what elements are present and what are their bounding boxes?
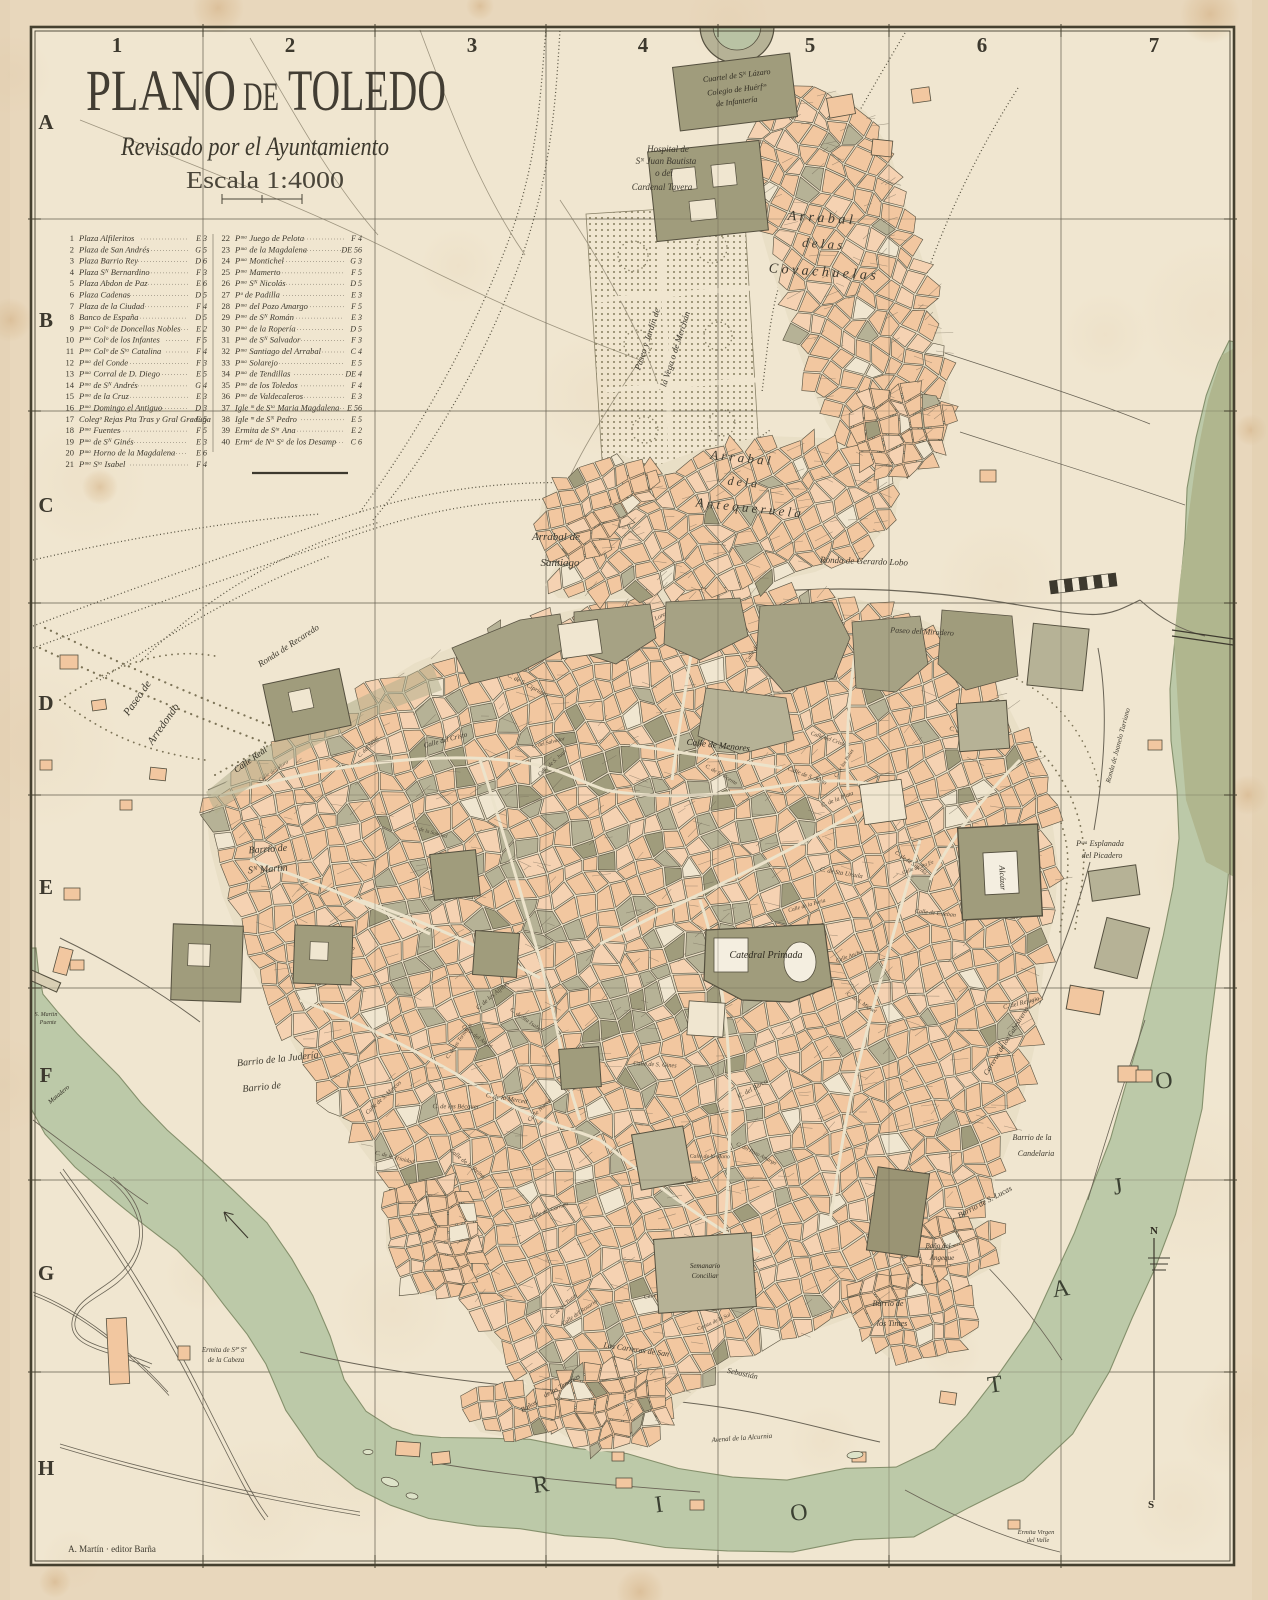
svg-text:E 2: E 2 xyxy=(195,324,207,333)
svg-text:Pᵚᵃ de Sᴺ Román: Pᵚᵃ de Sᴺ Román xyxy=(234,312,294,322)
svg-text:Pᵚᵃ de Sᴺ Andrés: Pᵚᵃ de Sᴺ Andrés xyxy=(78,380,138,390)
svg-text:F 5: F 5 xyxy=(195,336,207,345)
svg-text:E 6: E 6 xyxy=(195,449,207,458)
svg-text:Ermita de Sᵗᵃ Ana: Ermita de Sᵗᵃ Ana xyxy=(234,425,296,435)
svg-text:2: 2 xyxy=(70,244,74,254)
svg-text:6: 6 xyxy=(977,33,988,57)
svg-text:Semanario: Semanario xyxy=(690,1262,721,1270)
svg-text:10: 10 xyxy=(66,335,75,345)
svg-text:Arrabal de: Arrabal de xyxy=(531,531,580,543)
svg-text:D 5: D 5 xyxy=(194,291,207,300)
svg-text:38: 38 xyxy=(222,414,231,424)
svg-text:Pᵚᵃ de la Cruz: Pᵚᵃ de la Cruz xyxy=(78,391,129,401)
svg-text:G 5: G 5 xyxy=(195,245,207,254)
svg-text:Banco de España: Banco de España xyxy=(79,312,139,322)
svg-text:D: D xyxy=(38,691,53,715)
svg-text:Pᵚᵃ Corral de D. Diego: Pᵚᵃ Corral de D. Diego xyxy=(78,369,160,379)
svg-text:Pᵚᵃ de los Toledos: Pᵚᵃ de los Toledos xyxy=(234,380,298,390)
svg-text:E 5: E 5 xyxy=(350,415,362,424)
svg-text:G 3: G 3 xyxy=(350,257,362,266)
svg-text:D 5: D 5 xyxy=(349,324,362,333)
svg-text:Catedral Primada: Catedral Primada xyxy=(729,950,802,961)
svg-text:DE: DE xyxy=(243,74,279,119)
svg-text:E 2: E 2 xyxy=(350,426,362,435)
svg-text:1: 1 xyxy=(112,33,123,57)
svg-text:28: 28 xyxy=(222,301,231,311)
svg-text:Puente: Puente xyxy=(39,1020,57,1026)
svg-text:23: 23 xyxy=(222,244,231,254)
svg-text:E: E xyxy=(39,875,53,899)
svg-text:PLANO: PLANO xyxy=(86,58,236,123)
svg-text:Pᵒ de Padilla: Pᵒ de Padilla xyxy=(234,290,280,300)
svg-text:TOLEDO: TOLEDO xyxy=(288,58,446,123)
svg-text:Plaza Alfileritos: Plaza Alfileritos xyxy=(78,233,135,243)
svg-text:27: 27 xyxy=(222,290,231,300)
svg-text:Sᴺ Juan Bautista: Sᴺ Juan Bautista xyxy=(636,156,697,166)
svg-text:Pᵚᵃ del Conde: Pᵚᵃ del Conde xyxy=(78,357,128,367)
svg-text:G 4: G 4 xyxy=(195,381,207,390)
svg-text:D 6: D 6 xyxy=(194,257,207,266)
svg-text:25: 25 xyxy=(222,267,231,277)
svg-text:Pᵚᵃ de Sᴺ Ginés: Pᵚᵃ de Sᴺ Ginés xyxy=(78,436,134,446)
svg-text:d e l a s: d e l a s xyxy=(802,235,843,253)
svg-text:Hospital de: Hospital de xyxy=(646,144,689,154)
svg-text:DE 4: DE 4 xyxy=(344,370,362,379)
svg-text:C: C xyxy=(38,493,53,517)
svg-text:3: 3 xyxy=(467,33,478,57)
svg-text:C 4: C 4 xyxy=(351,347,362,356)
svg-text:E 3: E 3 xyxy=(350,313,362,322)
svg-text:2: 2 xyxy=(285,33,296,57)
svg-text:E 3: E 3 xyxy=(350,392,362,401)
svg-text:D 5: D 5 xyxy=(349,279,362,288)
svg-text:Igle ᵐ de Sᵗᵃ Maria Magdalena: Igle ᵐ de Sᵗᵃ Maria Magdalena xyxy=(234,403,339,413)
svg-text:N: N xyxy=(1150,1225,1158,1237)
svg-text:24: 24 xyxy=(222,256,231,266)
svg-text:F 5: F 5 xyxy=(350,268,362,277)
svg-text:del Picadero: del Picadero xyxy=(1082,851,1123,860)
svg-text:Baño del: Baño del xyxy=(925,1242,950,1250)
svg-text:Pᵚᵃ Esplanada: Pᵚᵃ Esplanada xyxy=(1075,839,1124,848)
svg-text:Pᵚᵃ de la Magdalena: Pᵚᵃ de la Magdalena xyxy=(234,244,307,254)
svg-text:Angeque: Angeque xyxy=(929,1254,955,1262)
svg-text:del Valle: del Valle xyxy=(1027,1537,1050,1544)
svg-text:Pᵚᵃ Fuentes: Pᵚᵃ Fuentes xyxy=(78,425,121,435)
svg-text:F 4: F 4 xyxy=(350,234,362,243)
svg-text:20: 20 xyxy=(66,448,75,458)
svg-text:Plaza Cadenas: Plaza Cadenas xyxy=(78,290,131,300)
svg-text:F 4: F 4 xyxy=(195,460,207,469)
svg-text:Pᵚᵃ de la Ropería: Pᵚᵃ de la Ropería xyxy=(234,323,296,333)
svg-text:18: 18 xyxy=(66,425,75,435)
svg-text:G: G xyxy=(38,1261,54,1285)
svg-text:A: A xyxy=(38,110,54,134)
svg-text:Ermita de S¹ª Sª: Ermita de S¹ª Sª xyxy=(201,1346,247,1354)
svg-text:E 56: E 56 xyxy=(346,404,362,413)
svg-text:Pᵚᵃ de Tendillas: Pᵚᵃ de Tendillas xyxy=(234,369,291,379)
svg-text:Pᵚᵃ Colᵒ de Sᵗᵃ Catalina: Pᵚᵃ Colᵒ de Sᵗᵃ Catalina xyxy=(78,346,161,356)
svg-text:los Tintes: los Tintes xyxy=(877,1319,907,1328)
svg-text:37: 37 xyxy=(222,403,231,413)
svg-text:21: 21 xyxy=(66,459,75,469)
svg-text:22: 22 xyxy=(222,233,231,243)
svg-text:39: 39 xyxy=(222,425,231,435)
svg-text:F 3: F 3 xyxy=(195,358,207,367)
svg-text:S. Martin: S. Martin xyxy=(35,1012,58,1018)
svg-text:Pᵚᵃ Sᵗᵃ Isabel: Pᵚᵃ Sᵗᵃ Isabel xyxy=(78,459,126,469)
svg-text:12: 12 xyxy=(66,357,75,367)
svg-text:E 6: E 6 xyxy=(195,279,207,288)
svg-text:4: 4 xyxy=(638,33,649,57)
svg-text:B: B xyxy=(39,308,53,332)
svg-text:7: 7 xyxy=(1149,33,1160,57)
svg-text:Candelaria: Candelaria xyxy=(1018,1149,1054,1158)
svg-text:11: 11 xyxy=(66,346,74,356)
svg-text:15: 15 xyxy=(66,391,75,401)
svg-text:36: 36 xyxy=(222,391,231,401)
svg-text:Plaza Abdon de Paz: Plaza Abdon de Paz xyxy=(78,278,148,288)
svg-text:Plaza de la Ciudad: Plaza de la Ciudad xyxy=(78,301,145,311)
svg-text:O: O xyxy=(789,1499,810,1527)
svg-text:Pᵚᵃ Colᵒ de los Infantes: Pᵚᵃ Colᵒ de los Infantes xyxy=(78,335,160,345)
svg-text:E 5: E 5 xyxy=(195,370,207,379)
svg-text:Ermᵃ de Nᵃ Sᵃ de los Desamp: Ermᵃ de Nᵃ Sᵃ de los Desamp xyxy=(234,436,336,446)
svg-text:E 3: E 3 xyxy=(195,392,207,401)
svg-text:34: 34 xyxy=(222,369,231,379)
svg-text:17: 17 xyxy=(66,414,75,424)
svg-text:Pᵚᵃ Solarejo: Pᵚᵃ Solarejo xyxy=(234,357,278,367)
svg-text:16: 16 xyxy=(66,403,75,413)
svg-text:3: 3 xyxy=(70,256,74,266)
svg-text:Pᵚᵃ Domingo el Antiguo: Pᵚᵃ Domingo el Antiguo xyxy=(78,403,162,413)
svg-text:D 3: D 3 xyxy=(194,404,207,413)
svg-text:Cardenal Tavera: Cardenal Tavera xyxy=(632,182,693,192)
svg-text:31: 31 xyxy=(222,335,231,345)
svg-text:1: 1 xyxy=(70,233,74,243)
svg-text:E 3: E 3 xyxy=(195,437,207,446)
svg-text:Plaza Sᴺ Bernardino: Plaza Sᴺ Bernardino xyxy=(78,267,150,277)
svg-text:O: O xyxy=(1154,1067,1175,1095)
svg-text:33: 33 xyxy=(222,357,231,367)
svg-text:Santiago: Santiago xyxy=(540,557,580,569)
svg-text:5: 5 xyxy=(805,33,816,57)
svg-text:Calle de la Mano: Calle de la Mano xyxy=(690,1154,730,1161)
svg-text:F 3: F 3 xyxy=(195,268,207,277)
svg-text:Pᵚᵃ de Sᴺ Salvador: Pᵚᵃ de Sᴺ Salvador xyxy=(234,335,301,345)
svg-text:14: 14 xyxy=(66,380,75,390)
svg-text:C 5: C 5 xyxy=(196,415,207,424)
svg-text:29: 29 xyxy=(222,312,231,322)
svg-text:Pᵚᵃ del Pozo Amargo: Pᵚᵃ del Pozo Amargo xyxy=(234,301,308,311)
svg-text:H: H xyxy=(38,1456,54,1480)
svg-text:Pᵚᵃ Colᵒ de Doncellas Nobles: Pᵚᵃ Colᵒ de Doncellas Nobles xyxy=(78,323,181,333)
svg-text:F 4: F 4 xyxy=(350,381,362,390)
svg-text:F 4: F 4 xyxy=(195,347,207,356)
svg-text:Pᵚᵃ de Valdecaleros: Pᵚᵃ de Valdecaleros xyxy=(234,391,304,401)
svg-text:S: S xyxy=(1148,1499,1154,1511)
svg-text:F 3: F 3 xyxy=(350,336,362,345)
svg-text:30: 30 xyxy=(222,323,231,333)
svg-text:Pᵚᵃ Mamerto: Pᵚᵃ Mamerto xyxy=(234,267,281,277)
svg-text:8: 8 xyxy=(70,312,74,322)
svg-text:26: 26 xyxy=(222,278,231,288)
svg-text:40: 40 xyxy=(222,436,231,446)
svg-text:Ermita Virgen: Ermita Virgen xyxy=(1017,1529,1055,1536)
svg-text:F 4: F 4 xyxy=(195,302,207,311)
svg-text:C. de los Bécquer: C. de los Bécquer xyxy=(432,1103,479,1110)
svg-text:E 5: E 5 xyxy=(350,358,362,367)
svg-text:Colegᵒ Rejas Pta Tras y Gral G: Colegᵒ Rejas Pta Tras y Gral Graduga xyxy=(79,414,211,424)
svg-text:E 3: E 3 xyxy=(350,291,362,300)
svg-text:A. Martín · editor Barña: A. Martín · editor Barña xyxy=(68,1544,156,1554)
svg-text:E 3: E 3 xyxy=(195,234,207,243)
svg-text:Plaza Barrio Rey: Plaza Barrio Rey xyxy=(78,256,138,266)
svg-text:Pᵚᵃ Horno de la Magdalena: Pᵚᵃ Horno de la Magdalena xyxy=(78,448,175,458)
svg-text:Barrio de la: Barrio de la xyxy=(1012,1133,1051,1142)
svg-text:F 5: F 5 xyxy=(350,302,362,311)
svg-text:35: 35 xyxy=(222,380,231,390)
svg-text:D 5: D 5 xyxy=(194,313,207,322)
svg-text:32: 32 xyxy=(222,346,231,356)
svg-text:13: 13 xyxy=(66,369,75,379)
svg-text:Pᵚᵃ Montichel: Pᵚᵃ Montichel xyxy=(234,256,284,266)
svg-text:F 5: F 5 xyxy=(195,426,207,435)
svg-text:9: 9 xyxy=(70,323,74,333)
svg-text:Conciliar: Conciliar xyxy=(692,1272,719,1280)
svg-text:Plaza de San Andrés: Plaza de San Andrés xyxy=(78,244,150,254)
svg-text:Escala 1:4000: Escala 1:4000 xyxy=(186,168,344,194)
svg-text:Pᵚᵃ Juego de Pelota: Pᵚᵃ Juego de Pelota xyxy=(234,233,304,243)
svg-text:Pᵚᵃ Sᴺ Nicolás: Pᵚᵃ Sᴺ Nicolás xyxy=(234,278,286,288)
svg-text:Alcázar: Alcázar xyxy=(997,864,1007,891)
svg-text:o del: o del xyxy=(655,168,673,178)
svg-text:6: 6 xyxy=(70,290,74,300)
svg-text:19: 19 xyxy=(66,436,75,446)
svg-text:Barrio de: Barrio de xyxy=(873,1299,904,1308)
svg-text:Revisado por el Ayuntamiento: Revisado por el Ayuntamiento xyxy=(120,132,389,161)
svg-text:DE 56: DE 56 xyxy=(340,245,362,254)
svg-text:Pᵚᵃ Santiago del Arrabal: Pᵚᵃ Santiago del Arrabal xyxy=(234,346,322,356)
svg-text:de la Cabeza: de la Cabeza xyxy=(208,1356,245,1364)
svg-text:Igle ᵐ de Sᴺ Pedro: Igle ᵐ de Sᴺ Pedro xyxy=(234,414,297,424)
svg-text:7: 7 xyxy=(70,301,74,311)
svg-text:F: F xyxy=(40,1063,53,1087)
svg-text:C 6: C 6 xyxy=(351,437,362,446)
svg-text:5: 5 xyxy=(70,278,74,288)
